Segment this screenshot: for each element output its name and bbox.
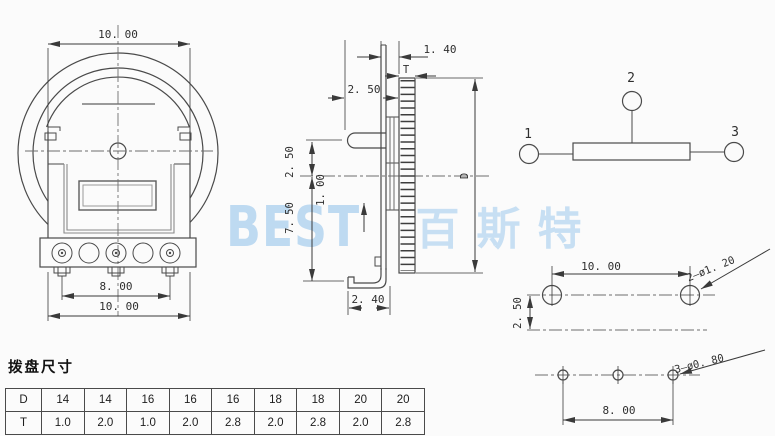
side-view-dimensions: 1. 40 T 2. 50 2. 50 1. 00 7. 50 [284,40,483,315]
t-value: 2.8 [297,412,340,435]
table-row-thickness: T 1.0 2.0 1.0 2.0 2.8 2.0 2.8 2.0 2.8 [6,412,425,435]
schematic-terminal-2-circle [623,92,642,111]
schematic-terminal-1-circle [520,145,539,164]
mount-holes-callout-label: 2–ø1. 20 [685,254,736,284]
dim-mount-hole-spacing-label: 10. 00 [581,260,621,273]
schematic-terminal-1-label: 1 [524,127,532,142]
technical-drawing-canvas: 10. 00 8. 00 10. 00 [0,0,775,436]
engineering-drawing-page: BEST 百斯特 [0,0,775,436]
d-value: 16 [169,389,212,412]
wheel-thickness-label: T [403,64,410,76]
lever-slot [348,133,386,148]
pcb-terminal-holes: 8. 00 3–ø0. 80 [535,350,765,425]
dim-foot-length-label: 2. 40 [351,293,384,306]
foot-bracket-inner [348,268,381,283]
knurled-wheel [399,78,415,273]
d-value: 20 [339,389,382,412]
d-value: 14 [42,389,85,412]
dim-wheel-protrusion-label: 1. 40 [423,43,456,56]
row-header-t: T [6,412,42,435]
d-value: 18 [254,389,297,412]
t-value: 1.0 [42,412,85,435]
schematic-resistor-body [573,143,690,160]
dim-bottom-width-label: 10. 00 [99,300,139,313]
dim-lever-to-center-label: 2. 50 [284,146,296,178]
schematic: 1 2 3 [520,71,744,164]
t-value: 1.0 [127,412,170,435]
dim-center-offset-label: 1. 00 [315,174,327,206]
d-value: 20 [382,389,425,412]
d-value: 16 [212,389,255,412]
dim-lever-horizontal-label: 2. 50 [347,83,380,96]
table-row-diameter: D 14 14 16 16 16 18 18 20 20 [6,389,425,412]
row-header-d: D [6,389,42,412]
dim-terminal-hole-spacing-label: 8. 00 [602,404,635,417]
schematic-terminal-2-label: 2 [627,71,635,86]
dial-size-table: D 14 14 16 16 16 18 18 20 20 T 1.0 2.0 1… [5,388,425,435]
dim-pin-spacing-label: 8. 00 [99,280,132,293]
t-value: 2.0 [84,412,127,435]
schematic-terminal-3-circle [725,143,744,162]
dim-row-offset-label: 2. 50 [512,297,524,329]
wheel-hub [386,117,399,210]
terminal-holes-callout-label: 3–ø0. 80 [673,352,725,376]
pcb-mount-holes: 10. 00 2. 50 2–ø1. 20 [512,249,770,330]
d-value: 16 [127,389,170,412]
plate-side-bump [375,257,381,266]
schematic-terminal-3-label: 3 [731,125,739,140]
wheel-diameter-label: D [459,173,471,179]
t-value: 2.8 [382,412,425,435]
t-value: 2.0 [169,412,212,435]
t-value: 2.8 [212,412,255,435]
dim-top-width-label: 10. 00 [98,28,138,41]
d-value: 18 [297,389,340,412]
side-view: 1. 40 T 2. 50 2. 50 1. 00 7. 50 [284,40,490,315]
t-value: 2.0 [339,412,382,435]
dim-body-below-center-label: 7. 50 [284,202,296,234]
t-value: 2.0 [254,412,297,435]
front-view: 10. 00 8. 00 10. 00 [18,25,218,321]
dial-size-table-title: 拨盘尺寸 [8,356,74,377]
d-value: 14 [84,389,127,412]
